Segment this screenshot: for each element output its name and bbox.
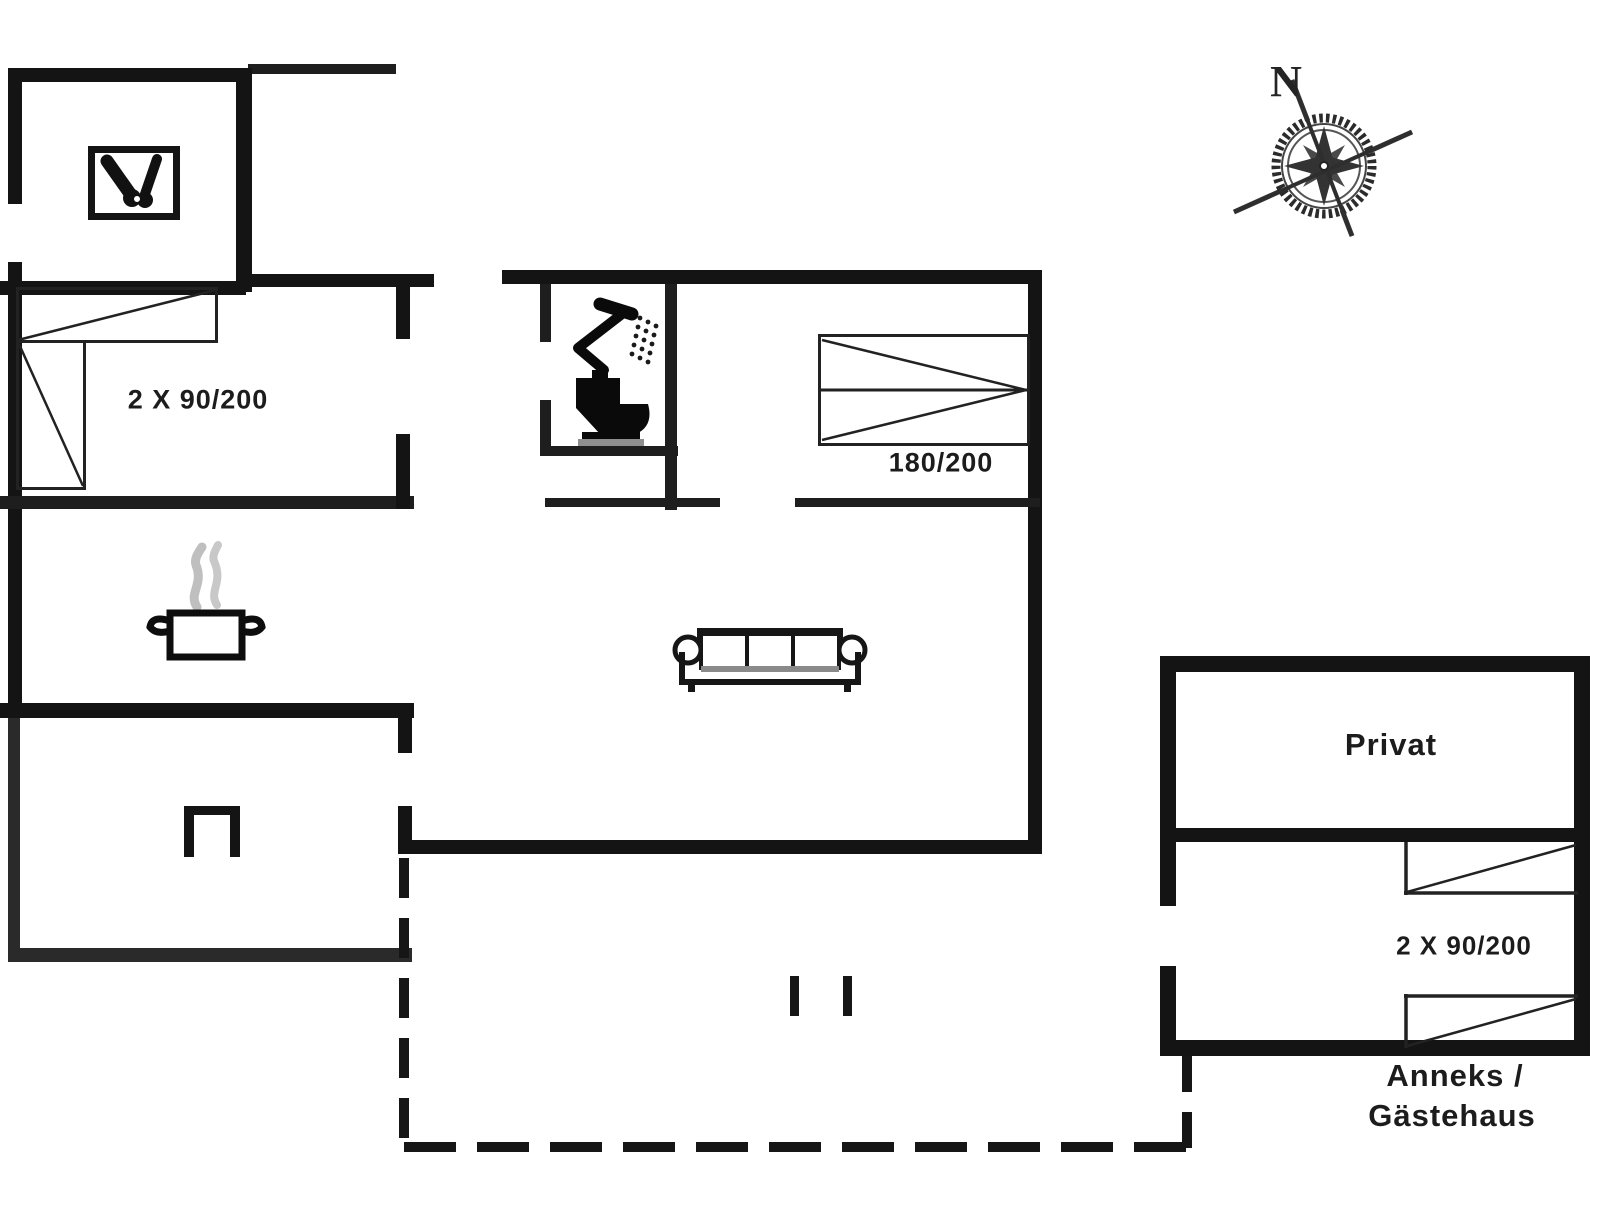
cooking-pot-icon (142, 535, 268, 661)
shower-icon (560, 292, 668, 376)
wall-segment (398, 840, 1042, 854)
utility-tools-icon (88, 146, 180, 220)
wall-segment (8, 68, 22, 204)
bedroom2-bed-size-label: 180/200 (889, 448, 994, 479)
terrace-door-mark (790, 976, 799, 1016)
wall-segment (1160, 828, 1590, 842)
wall-segment (396, 434, 410, 509)
annex-bed-icon (1404, 842, 1578, 895)
terrace-door-mark (843, 976, 852, 1016)
fireplace-icon (184, 806, 240, 857)
compass-rose-icon: N (1212, 44, 1416, 240)
wall-segment (0, 496, 414, 509)
wall-segment (8, 68, 252, 82)
wall-segment (540, 284, 551, 342)
wall-segment (1160, 656, 1590, 672)
sofa-icon (672, 622, 868, 696)
terrace-boundary-right (1182, 1052, 1192, 1148)
single-bed-icon-horizontal (16, 287, 218, 343)
wall-segment (502, 270, 1042, 284)
wall-segment (8, 948, 412, 962)
wall-segment (0, 703, 414, 718)
floor-plan: N 2 X 90/200 180/200 Privat 2 X 90/200 A… (0, 0, 1606, 1205)
annex-bed-icon (1404, 994, 1578, 1048)
double-bed-icon (818, 334, 1030, 446)
wall-segment (540, 400, 551, 452)
compass-north-label: N (1270, 57, 1302, 106)
annex-caption-line1: Anneks / (1386, 1058, 1523, 1094)
wall-segment (236, 68, 252, 292)
wall-segment (396, 281, 410, 339)
wall-segment (8, 718, 20, 962)
bedroom1-bed-size-label: 2 X 90/200 (128, 385, 269, 416)
wall-segment (248, 64, 396, 74)
wall-segment (398, 703, 412, 753)
annex-bed-size-label: 2 X 90/200 (1396, 931, 1532, 962)
single-bed-icon-vertical (16, 340, 86, 490)
annex-private-room-label: Privat (1345, 727, 1437, 763)
wall-segment (795, 498, 1040, 507)
terrace-boundary-left (399, 858, 409, 1154)
terrace-boundary-bottom (404, 1142, 1192, 1152)
annex-caption-line2: Gästehaus (1368, 1098, 1536, 1134)
toilet-icon (570, 370, 660, 448)
wall-segment (1160, 656, 1176, 906)
wall-segment (545, 498, 720, 507)
wall-segment (1028, 270, 1042, 854)
